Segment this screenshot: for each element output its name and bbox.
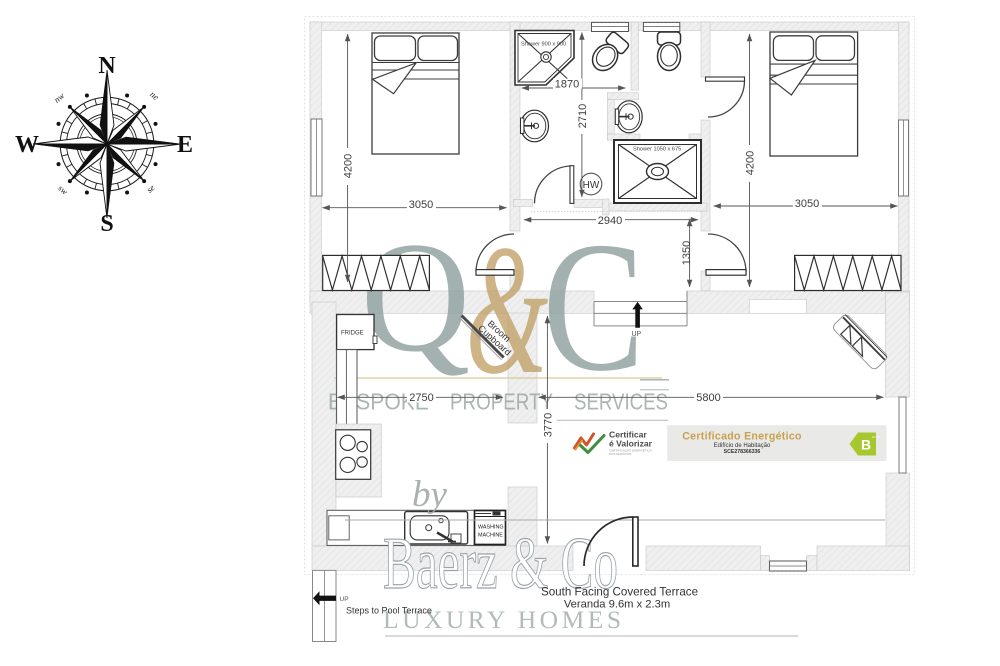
svg-text:W: W	[15, 132, 39, 158]
svg-text:Certificado Energético: Certificado Energético	[682, 431, 802, 443]
svg-text:South Facing Covered Terrace: South Facing Covered Terrace	[541, 586, 698, 599]
svg-text:by: by	[412, 474, 448, 515]
svg-text:N: N	[98, 53, 116, 79]
svg-text:Steps to Pool Terrace: Steps to Pool Terrace	[346, 606, 432, 616]
svg-text:1870: 1870	[555, 78, 579, 90]
svg-text:4200: 4200	[745, 151, 757, 175]
svg-text:SCE278366336: SCE278366336	[724, 449, 761, 455]
svg-text:&: &	[466, 206, 549, 412]
svg-text:DOS EDIFÍCIOS: DOS EDIFÍCIOS	[609, 452, 631, 456]
svg-text:2940: 2940	[598, 215, 622, 227]
svg-text:3050: 3050	[795, 198, 819, 210]
svg-text:PROPERTY: PROPERTY	[450, 389, 553, 415]
svg-text:Shower 900 x 900: Shower 900 x 900	[521, 42, 566, 48]
svg-text:5800: 5800	[696, 392, 720, 404]
svg-text:HW: HW	[583, 180, 600, 191]
svg-text:1350: 1350	[681, 241, 693, 265]
svg-text:2750: 2750	[409, 392, 433, 404]
svg-text:UP: UP	[632, 331, 642, 338]
svg-text:Shower 1050 x 675: Shower 1050 x 675	[633, 147, 681, 153]
svg-text:3050: 3050	[409, 199, 433, 211]
svg-text:E: E	[177, 132, 193, 158]
svg-text:Q: Q	[361, 210, 471, 384]
svg-text:4200: 4200	[343, 154, 355, 178]
svg-text:⁻⁻: ⁻⁻	[872, 434, 880, 443]
svg-text:SERVICES: SERVICES	[574, 389, 668, 415]
svg-text:FRIDGE: FRIDGE	[341, 331, 364, 337]
svg-text:é Valorizar: é Valorizar	[609, 439, 653, 449]
svg-text:S: S	[100, 211, 113, 237]
svg-text:UP: UP	[340, 596, 349, 603]
svg-text:2710: 2710	[577, 104, 589, 128]
svg-text:Veranda 9.6m x 2.3m: Veranda 9.6m x 2.3m	[564, 599, 670, 611]
svg-text:B: B	[861, 437, 871, 453]
svg-text:3770: 3770	[542, 413, 554, 437]
